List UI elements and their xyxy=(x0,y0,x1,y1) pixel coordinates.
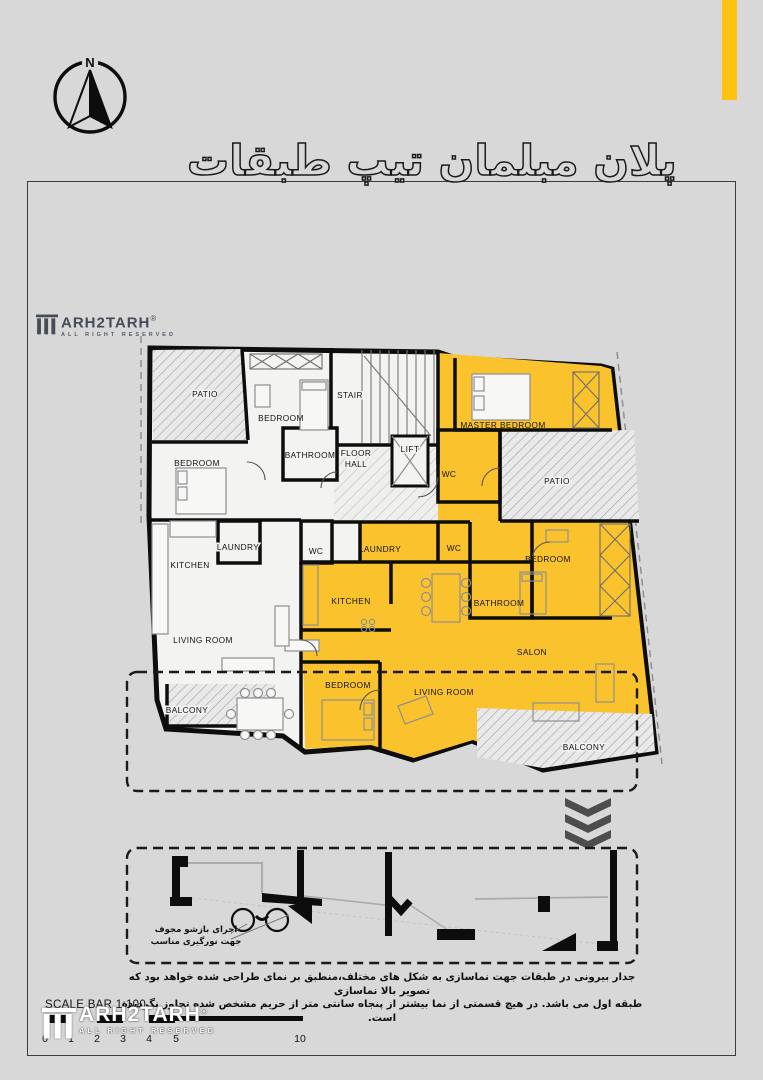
room-label: FLOOR xyxy=(341,448,372,458)
detail-annotation-line1: اجرای بازشو مجوف xyxy=(148,924,244,936)
brand-text: ARH2TARH xyxy=(79,1003,201,1026)
room-label: KITCHEN xyxy=(170,560,209,570)
room-label: BATHROOM xyxy=(474,598,525,608)
room-label: BATHROOM xyxy=(285,450,336,460)
room-label: WC xyxy=(447,543,462,553)
room-label: BEDROOM xyxy=(258,413,304,423)
room-label: LAUNDRY xyxy=(217,542,259,552)
room-label: LIVING ROOM xyxy=(414,687,474,697)
detail-annotation: اجرای بازشو مجوف جهت نورگیری مناسب xyxy=(148,924,244,948)
chevron-down-icon xyxy=(565,798,611,849)
watermark-logo-bottom: ARH2TARH® ALL RIGHT RESERVED xyxy=(42,1004,216,1044)
accent-bar xyxy=(722,0,737,100)
room-label: WC xyxy=(442,469,457,479)
room-label: BEDROOM xyxy=(525,554,571,564)
room-label: BALCONY xyxy=(166,705,209,715)
gate-icon xyxy=(42,1004,76,1044)
scale-number: 10 xyxy=(294,1033,306,1045)
room-label: HALL xyxy=(345,459,367,469)
gate-icon xyxy=(36,314,58,336)
compass-n-label: N xyxy=(85,55,94,70)
north-compass: N xyxy=(48,52,132,138)
room-label: STAIR xyxy=(337,390,363,400)
brand-text: ARH2TARH xyxy=(61,314,150,331)
room-label: BEDROOM xyxy=(174,458,220,468)
room-label: SALON xyxy=(517,647,547,657)
floor-plan-svg: PATIO BEDROOM STAIR MASTER BEDROOM BEDRO… xyxy=(110,325,670,970)
poster-page: { "poster": { "title": "پلان مبلمان تیپ … xyxy=(0,0,763,1080)
watermark-logo-top: ARH2TARH® ALL RIGHT RESERVED xyxy=(36,314,176,338)
room-label: WC xyxy=(309,546,324,556)
room-label: LIVING ROOM xyxy=(173,635,233,645)
page-title: پلان مبلمان تیپ طبقات xyxy=(187,128,747,194)
rights-text: ALL RIGHT RESERVED xyxy=(61,332,176,338)
room-label: BEDROOM xyxy=(325,680,371,690)
north-arrow-right xyxy=(90,70,111,127)
detail-annotation-line2: جهت نورگیری مناسب xyxy=(148,936,244,948)
room-label: MASTER BEDROOM xyxy=(460,420,545,430)
balcony-hatch-right xyxy=(477,708,655,768)
registered-mark: ® xyxy=(150,314,156,323)
room-label: PATIO xyxy=(544,476,570,486)
registered-mark: ® xyxy=(201,1008,207,1017)
room-label: PATIO xyxy=(192,389,218,399)
room-label: KITCHEN xyxy=(331,596,370,606)
north-arrow-left xyxy=(69,70,90,127)
room-label: LAUNDRY xyxy=(359,544,401,554)
room-label: LIFT xyxy=(401,444,420,454)
room-label: BALCONY xyxy=(563,742,606,752)
rights-text: ALL RIGHT RESERVED xyxy=(79,1026,216,1035)
note-line1: جدار بیرونی در طبقات جهت نماسازی به شکل … xyxy=(118,971,646,998)
